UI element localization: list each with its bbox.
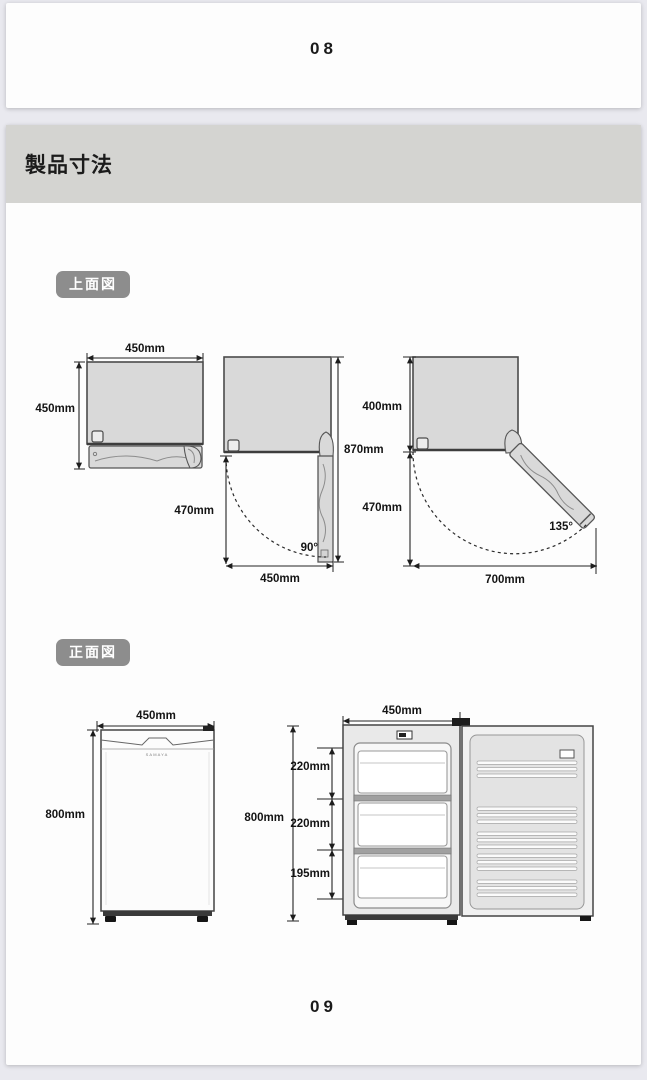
previous-page-number: 08 [6,39,641,59]
page-title: 製品寸法 [25,149,113,179]
front-view-badge: 正面図 [56,639,130,666]
dimensions-page-card: 製品寸法 上面図 正面図 09 [6,125,641,1065]
previous-page-card: 08 [6,3,641,108]
section-header-bar: 製品寸法 [6,125,641,203]
current-page-number: 09 [6,997,641,1017]
manual-screenshot-stage: 08 製品寸法 上面図 正面図 09 450mm 450mm [0,0,647,1080]
top-view-badge: 上面図 [56,271,130,298]
